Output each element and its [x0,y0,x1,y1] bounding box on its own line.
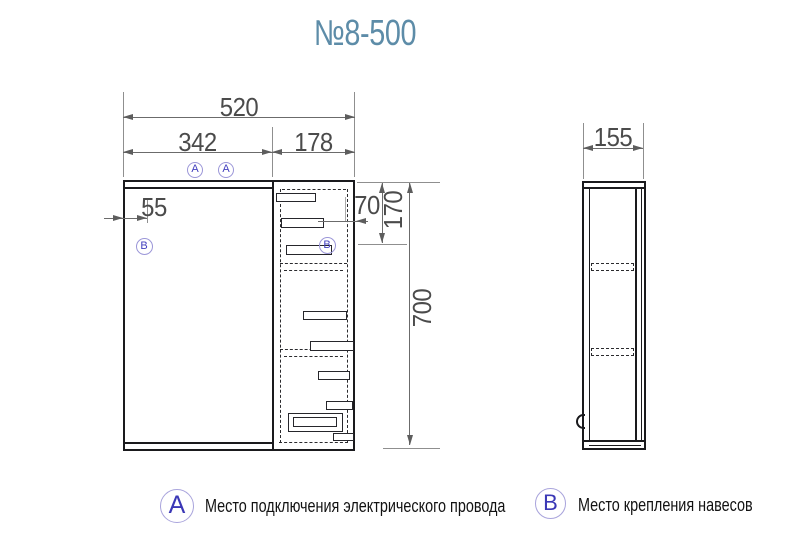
shelf-bar-4 [303,311,347,320]
side-bottom-line-2 [589,445,641,446]
marker-a-icon: A [218,162,234,178]
side-door-line-2 [641,187,642,440]
shelf-bar-2 [281,218,324,228]
arrow-icon [345,114,355,120]
dim-label-342: 342 [129,127,266,158]
ext-line-155-left [583,123,584,179]
cabinet-shelf-dashed-2b [284,356,343,357]
cabinet-door-dashed-top [282,189,346,190]
side-shelf-dashed-1 [591,263,634,271]
dim-label-55: 55 [139,192,168,223]
marker-b-icon: B [319,237,336,254]
dim-label-178: 178 [275,127,351,158]
ext-line-700-bottom [383,448,440,449]
legend-marker-a-icon: A [160,489,194,523]
shelf-bar-6 [318,371,350,380]
ext-line-155-right [643,123,644,179]
arrow-icon [113,215,123,221]
side-door-line-1 [635,187,637,440]
cabinet-door-dashed-bottom [279,442,348,443]
mirror-bottom-frame-line [123,442,272,444]
bottom-box [288,413,343,432]
legend-text-a: Место подключения электрического провода [205,496,505,516]
cabinet-shelf-dashed-1a [280,263,347,264]
arrow-icon [407,183,413,193]
dim-label-700: 700 [409,282,435,334]
ext-line-shelf [345,197,346,222]
shelf-bar-8 [333,433,354,441]
side-shelf-dashed-2 [591,348,634,356]
marker-b-icon: B [136,238,153,255]
shelf-bar-5 [310,341,354,351]
side-bottom-line-1 [584,440,644,442]
dim-label-155: 155 [585,122,640,153]
dim-label-70: 70 [353,190,381,221]
marker-a-icon: A [187,162,203,178]
shelf-bar-1 [276,193,316,202]
ext-line-left [123,92,124,177]
bottom-box-inner [293,417,337,428]
cabinet-shelf-dashed-1b [284,270,343,271]
legend-text-b: Место крепления навесов [578,495,753,515]
mirror-top-frame-line [123,187,272,189]
dim-label-520: 520 [132,92,345,123]
page-title: №8-500 [273,12,457,54]
ext-line-right [354,92,355,177]
legend-marker-b-icon: B [535,488,566,519]
front-view-divider [272,180,275,451]
ext-line-top-right [357,182,440,183]
arrow-icon [407,435,413,445]
shelf-bar-7 [326,401,353,410]
side-left-inner-line [589,187,591,440]
ext-line-170-bottom [358,244,407,245]
drawing-page: №8-500 520 342 178 55 [0,0,800,554]
dim-label-170: 170 [380,184,406,236]
